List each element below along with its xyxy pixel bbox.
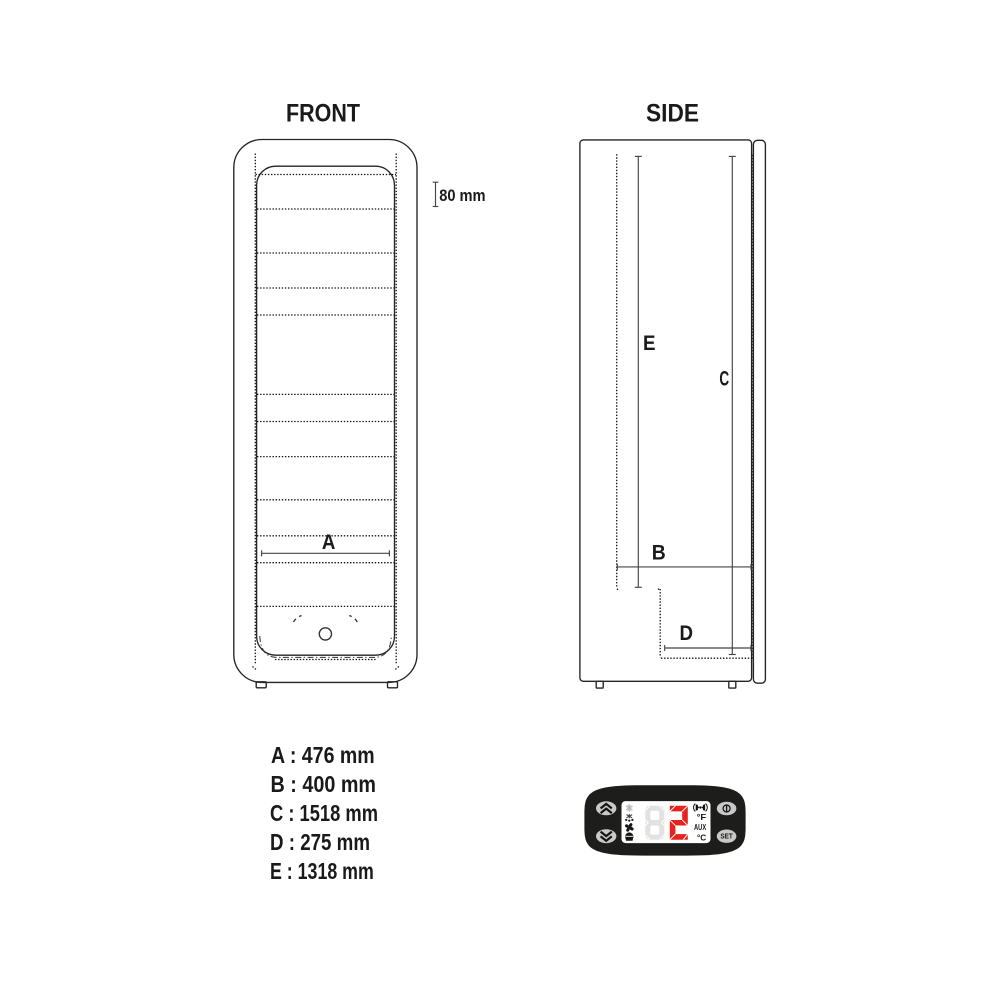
svg-text:E: E — [643, 331, 656, 355]
svg-text:A: A — [322, 530, 336, 554]
svg-text:B: B — [652, 541, 666, 565]
svg-text:80 mm: 80 mm — [439, 186, 485, 205]
svg-text:°F: °F — [697, 812, 707, 822]
svg-text:D: D — [680, 621, 694, 645]
svg-text:SIDE: SIDE — [646, 100, 699, 128]
svg-text:°C: °C — [697, 832, 706, 842]
svg-text:D : 275 mm: D : 275 mm — [270, 829, 370, 855]
svg-text:SET: SET — [720, 834, 733, 841]
svg-text:FRONT: FRONT — [286, 100, 360, 128]
svg-text:E : 1318 mm: E : 1318 mm — [270, 858, 374, 884]
svg-text:C: C — [719, 367, 729, 391]
svg-text:C : 1518 mm: C : 1518 mm — [270, 800, 378, 826]
svg-text:B : 400 mm: B : 400 mm — [271, 771, 377, 797]
svg-text:AUX: AUX — [694, 822, 706, 832]
svg-text:A : 476 mm: A : 476 mm — [271, 742, 375, 768]
